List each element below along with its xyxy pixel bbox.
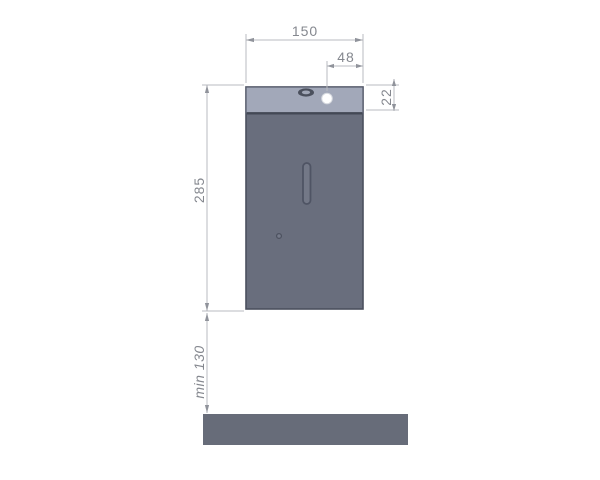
arrowhead-down-icon: [205, 405, 209, 413]
arrowhead-up-icon: [205, 85, 209, 93]
arrowhead-right-icon: [355, 38, 363, 42]
dim-clearance-below: min 130: [191, 313, 209, 413]
dim-button-inset: 48: [327, 49, 363, 91]
dim-label-overall-width: 150: [292, 23, 318, 39]
dim-label-cover-height: 22: [378, 88, 394, 106]
dispenser-unit: [246, 87, 363, 309]
arrowhead-up-icon: [205, 313, 209, 321]
shelf-bar: [203, 414, 408, 445]
arrowhead-right-icon: [356, 64, 363, 68]
arrowhead-up-icon: [392, 79, 396, 86]
dispenser-dimension-drawing: 150 48 22 285: [0, 0, 600, 480]
round-button-icon: [322, 93, 333, 104]
dim-body-height: 285: [191, 85, 244, 311]
dim-label-clearance-below: min 130: [191, 345, 207, 398]
arrowhead-left-icon: [246, 38, 254, 42]
keyhole-dot-icon: [277, 234, 282, 239]
dim-label-button-inset: 48: [337, 49, 355, 65]
arrowhead-left-icon: [327, 64, 334, 68]
arrowhead-down-icon: [205, 303, 209, 311]
dim-label-body-height: 285: [191, 177, 207, 203]
sight-slot: [303, 163, 311, 204]
technical-drawing-page: 150 48 22 285: [0, 0, 600, 480]
oval-sensor-icon: [298, 88, 314, 96]
dim-cover-height: 22: [366, 79, 399, 111]
